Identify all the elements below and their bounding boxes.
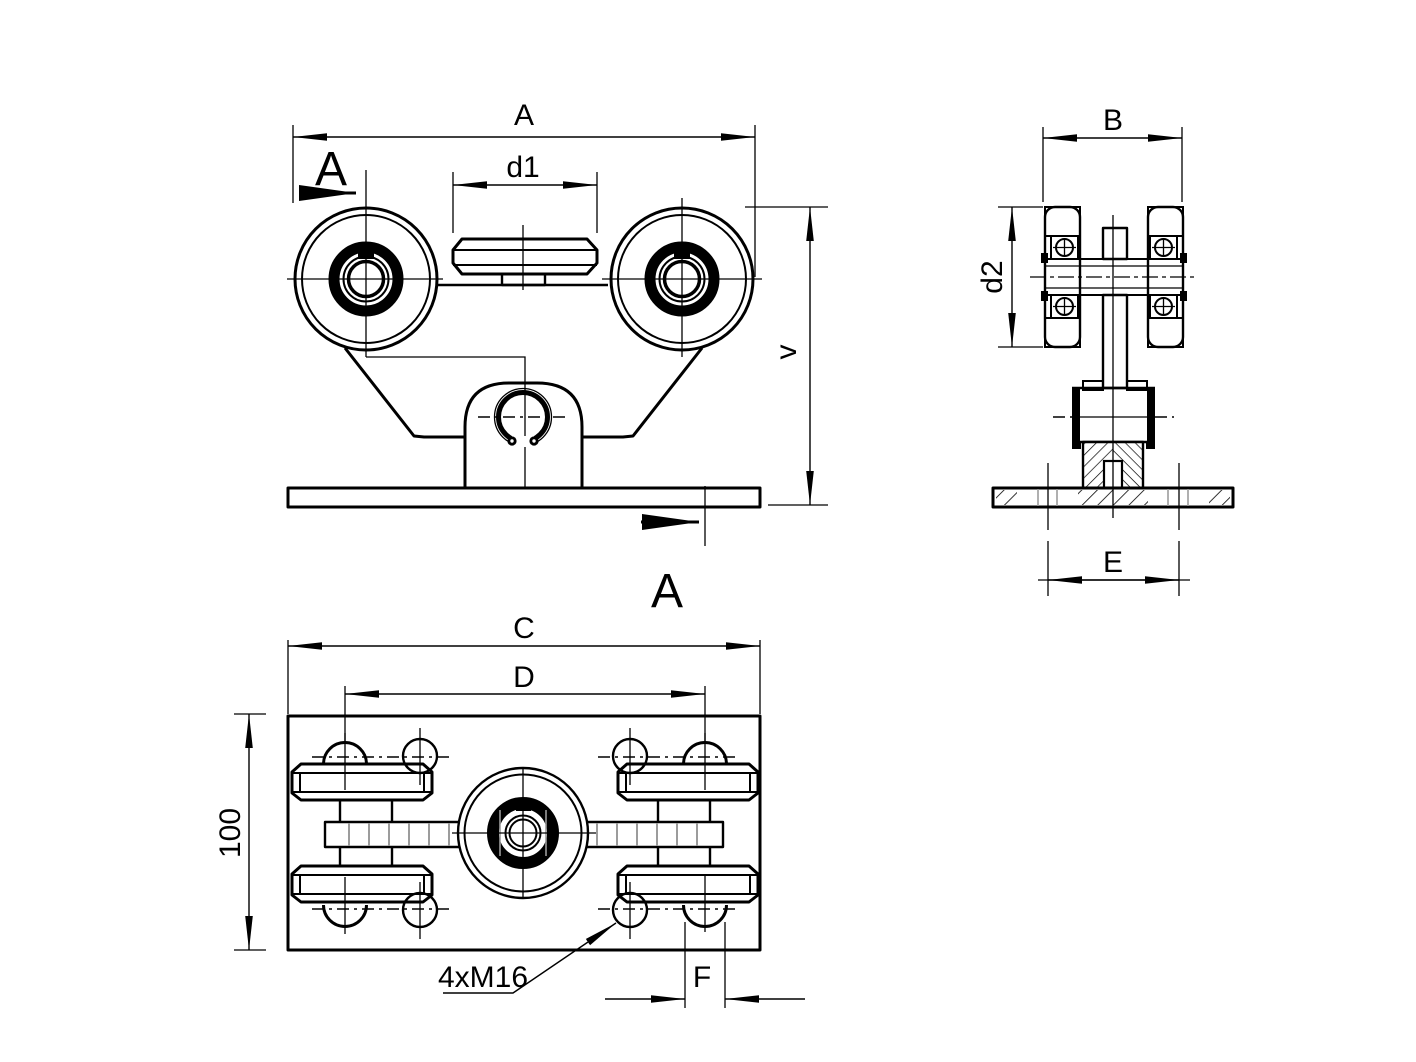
dim-label-F: F	[693, 961, 711, 994]
section-label-bottom: A	[651, 565, 683, 618]
dim-label-v: v	[770, 345, 803, 360]
cad-drawing: A A d1 v	[0, 0, 1416, 1062]
plan-view: C D 100	[214, 612, 805, 1008]
dim-label-A: A	[514, 99, 534, 132]
drawing-sheet: A A d1 v	[0, 0, 1416, 1062]
pivot-housing	[465, 383, 582, 488]
dimension-d1: d1	[453, 151, 597, 233]
dimension-E: E	[1038, 541, 1190, 596]
dim-label-d1: d1	[506, 151, 539, 184]
dimension-100: 100	[214, 714, 266, 950]
snapring-mark	[674, 251, 690, 259]
thread-note: 4xM16	[438, 923, 616, 994]
bearing	[1051, 295, 1078, 318]
dimension-B: B	[1043, 104, 1182, 202]
dimension-v: v	[745, 207, 828, 505]
snapring-mark	[358, 251, 374, 259]
section-label-top: A	[315, 143, 347, 196]
side-view: B d2	[976, 104, 1233, 596]
thread-note-label: 4xM16	[438, 961, 528, 994]
dim-label-C: C	[513, 612, 535, 645]
trolley-body	[345, 285, 702, 488]
dimension-D: D	[345, 661, 705, 744]
dim-label-E: E	[1103, 546, 1123, 579]
dimension-F: F	[605, 922, 805, 1008]
axle-stem	[1083, 228, 1147, 390]
bearing	[1051, 236, 1078, 259]
circlip	[478, 389, 568, 448]
dim-label-B: B	[1103, 104, 1123, 137]
dim-label-100: 100	[214, 808, 247, 858]
center-hub	[452, 768, 596, 898]
top-guide-roller	[453, 239, 597, 285]
dim-label-D: D	[513, 661, 535, 694]
front-view: A A d1 v	[287, 99, 828, 618]
base-plate	[288, 488, 760, 507]
bearing	[1150, 236, 1177, 259]
section-arrow-top: A	[299, 143, 356, 196]
bearing	[1150, 295, 1177, 318]
dim-label-d2: d2	[976, 260, 1009, 293]
